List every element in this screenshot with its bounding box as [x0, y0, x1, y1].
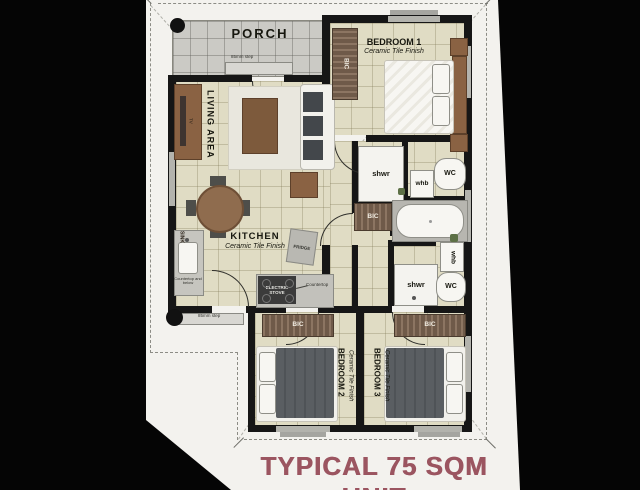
counter-note: Countertop and below — [172, 277, 204, 285]
plant-icon — [398, 188, 405, 195]
boundary-step-v — [237, 352, 238, 440]
nightstand — [450, 134, 468, 152]
porch-label: PORCH — [200, 27, 320, 41]
bedroom2-closet-label: BIC — [292, 322, 303, 329]
kitchen-step-label: 85mm step — [198, 314, 220, 319]
bedroom2-closet: BIC — [262, 314, 334, 337]
burner-icon — [262, 279, 271, 288]
pillow — [432, 64, 450, 94]
wall — [356, 306, 364, 432]
basin-main-label: whb — [416, 181, 429, 188]
coffee-table — [242, 98, 278, 154]
faucet-icon — [185, 238, 189, 242]
wall — [248, 306, 255, 432]
drain-icon — [412, 296, 416, 300]
window — [388, 16, 440, 22]
plant-icon — [450, 234, 458, 242]
burner-icon — [285, 279, 294, 288]
toilet-second-label: WC — [445, 283, 457, 290]
toilet-second: WC — [436, 272, 466, 302]
living-area-label: LIVING AREA — [205, 90, 214, 185]
nightstand — [450, 38, 468, 56]
window-sill — [390, 10, 438, 15]
bath-closet-label: BIC — [367, 214, 378, 221]
dining-chair — [186, 200, 196, 216]
basin-second: whb — [440, 242, 464, 272]
column-dot — [166, 309, 183, 326]
plan-sheet: PORCH 85mm step — [0, 0, 640, 490]
sink-label: SINK — [178, 231, 183, 243]
countertop-label: Countertop — [306, 283, 328, 288]
corner-arrow-icon — [485, 438, 496, 449]
porch-step-label: 85mm step — [231, 55, 253, 60]
shower-second: shwr — [394, 264, 438, 306]
basin-second-label: whb — [449, 251, 456, 264]
shower-main-label: shwr — [372, 170, 390, 178]
porch-step — [225, 62, 293, 75]
plan-title: TYPICAL 75 SQM UNIT — [228, 451, 520, 490]
boundary-bottom — [244, 439, 487, 440]
toilet-main: WC — [434, 158, 466, 190]
bed-duvet — [386, 348, 444, 418]
sofa-cushion — [303, 140, 323, 160]
pillow — [446, 352, 463, 382]
bedroom1-closet-label: BIC — [342, 58, 349, 69]
tv-screen — [180, 96, 186, 146]
fridge: FRIDGE — [286, 228, 318, 266]
column-dot — [170, 18, 185, 33]
burner-icon — [262, 294, 271, 303]
headboard — [452, 56, 467, 134]
drain-icon — [429, 220, 432, 223]
bedroom3-label: BEDROOM 3 — [372, 348, 380, 426]
wall — [168, 75, 252, 82]
boundary-step-h — [150, 352, 238, 353]
sofa-cushion — [303, 92, 323, 112]
boundary-right — [486, 3, 487, 440]
bedroom3-closet: BIC — [394, 314, 466, 337]
fridge-label: FRIDGE — [293, 243, 311, 250]
basin-main: whb — [410, 170, 434, 198]
pillow — [259, 352, 276, 382]
bed-duvet — [276, 348, 334, 418]
floor-plan-image: PORCH 85mm step — [0, 0, 640, 490]
bath-closet: BIC — [354, 203, 392, 231]
kitchen-sink — [178, 242, 198, 274]
window-sill — [280, 432, 326, 437]
window-sill — [418, 432, 460, 437]
bedroom2-label: BEDROOM 2 — [336, 348, 344, 426]
burner-icon — [285, 294, 294, 303]
window — [169, 152, 175, 206]
pillow — [446, 384, 463, 414]
toilet-main-label: WC — [444, 170, 456, 177]
tv-label: TV — [188, 118, 193, 124]
corner-arrow-icon — [141, 0, 152, 4]
wall — [352, 245, 358, 306]
shower-second-label: shwr — [407, 281, 425, 289]
pillow — [432, 96, 450, 126]
bedroom3-finish-label: Ceramic Tile Finish — [383, 350, 389, 428]
dining-table — [196, 185, 244, 233]
side-table — [290, 172, 318, 198]
pillow — [259, 384, 276, 414]
bedroom3-closet-label: BIC — [424, 322, 435, 329]
bedroom2-finish-label: Ceramic Tile Finish — [347, 350, 353, 428]
boundary-left — [150, 3, 151, 353]
bedroom1-closet: BIC — [332, 28, 358, 100]
sofa-cushion — [303, 116, 323, 136]
wall — [424, 306, 472, 313]
boundary-top — [158, 3, 488, 4]
wall — [284, 75, 330, 82]
bathtub — [396, 204, 464, 238]
